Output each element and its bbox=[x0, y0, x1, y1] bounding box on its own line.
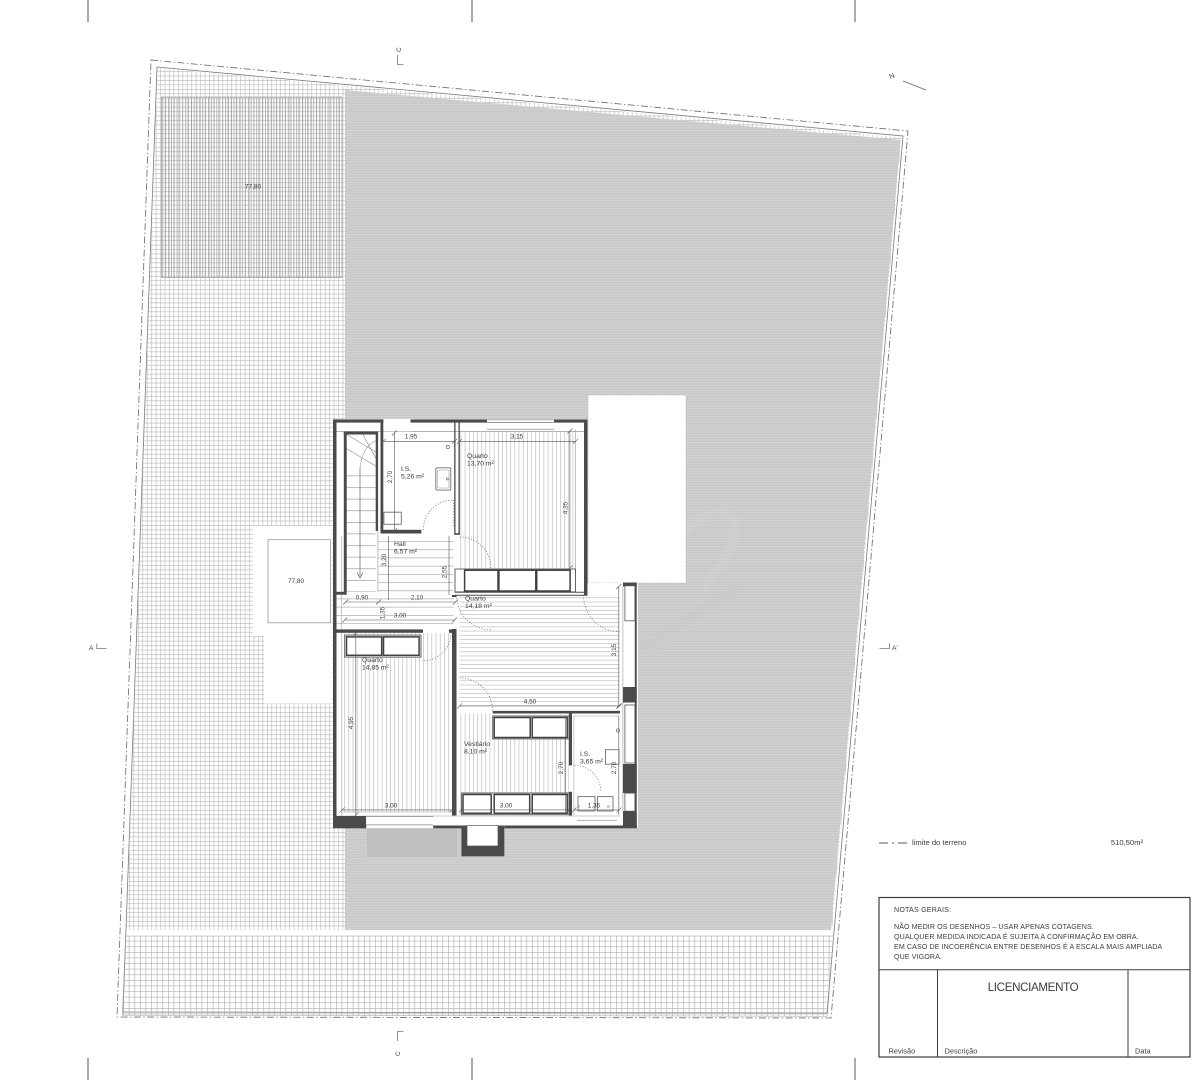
svg-text:A': A' bbox=[892, 645, 898, 652]
svg-text:Quarto: Quarto bbox=[465, 596, 486, 603]
svg-text:Quarto: Quarto bbox=[362, 657, 383, 664]
svg-text:5,26 m²: 5,26 m² bbox=[401, 473, 425, 480]
svg-text:C: C bbox=[396, 47, 403, 52]
svg-text:1,35: 1,35 bbox=[588, 802, 601, 809]
svg-text:EM CASO DE INCOERÊNCIA ENTRE D: EM CASO DE INCOERÊNCIA ENTRE DESENHOS É … bbox=[894, 942, 1163, 951]
svg-text:Quarto: Quarto bbox=[467, 453, 488, 460]
svg-text:77,80: 77,80 bbox=[245, 184, 261, 191]
svg-text:Vestiário: Vestiário bbox=[464, 741, 490, 748]
svg-text:8,10 m²: 8,10 m² bbox=[464, 748, 488, 755]
svg-text:NOTAS GERAIS:: NOTAS GERAIS: bbox=[894, 906, 951, 914]
svg-text:4,95: 4,95 bbox=[348, 716, 355, 729]
svg-text:QUALQUER MEDIDA INDICADA É SUJ: QUALQUER MEDIDA INDICADA É SUJEITA A CON… bbox=[894, 932, 1139, 941]
svg-text:0,90: 0,90 bbox=[356, 594, 369, 601]
svg-text:Hall: Hall bbox=[394, 541, 406, 548]
svg-text:I.S.: I.S. bbox=[401, 466, 411, 473]
svg-text:4,35: 4,35 bbox=[562, 501, 569, 514]
svg-text:QUE VIGORA.: QUE VIGORA. bbox=[894, 953, 942, 961]
svg-text:3,20: 3,20 bbox=[381, 553, 388, 566]
svg-text:77,80: 77,80 bbox=[288, 578, 304, 585]
svg-text:2,70: 2,70 bbox=[558, 761, 565, 774]
svg-text:6,57 m²: 6,57 m² bbox=[394, 548, 418, 555]
svg-text:3,00: 3,00 bbox=[385, 802, 398, 809]
svg-text:3,65 m²: 3,65 m² bbox=[580, 758, 604, 765]
svg-text:3,15: 3,15 bbox=[611, 643, 618, 656]
svg-text:NÃO MEDIR OS DESENHOS – USAR A: NÃO MEDIR OS DESENHOS – USAR APENAS COTA… bbox=[894, 922, 1094, 931]
svg-text:510,50m²: 510,50m² bbox=[1111, 838, 1144, 847]
svg-text:3,00: 3,00 bbox=[394, 612, 407, 619]
svg-text:1,35: 1,35 bbox=[380, 606, 387, 619]
svg-text:2,55: 2,55 bbox=[441, 565, 448, 578]
svg-text:LICENCIAMENTO: LICENCIAMENTO bbox=[988, 981, 1079, 994]
svg-text:2,70: 2,70 bbox=[387, 470, 394, 483]
svg-text:I.S.: I.S. bbox=[580, 751, 590, 758]
svg-text:C: C bbox=[395, 1051, 402, 1056]
svg-text:14,18 m²: 14,18 m² bbox=[465, 603, 493, 610]
svg-text:14,85 m²: 14,85 m² bbox=[362, 664, 390, 671]
svg-text:1,95: 1,95 bbox=[405, 434, 418, 441]
svg-text:13,70 m²: 13,70 m² bbox=[467, 460, 495, 467]
svg-text:4,50: 4,50 bbox=[524, 698, 537, 705]
svg-text:3,15: 3,15 bbox=[511, 434, 524, 441]
svg-text:2,70: 2,70 bbox=[611, 761, 618, 774]
svg-text:A: A bbox=[89, 645, 94, 652]
svg-text:Data: Data bbox=[1135, 1047, 1152, 1056]
svg-text:limite do terreno: limite do terreno bbox=[912, 838, 966, 847]
svg-text:2,10: 2,10 bbox=[411, 594, 424, 601]
svg-text:Revisão: Revisão bbox=[889, 1047, 916, 1056]
svg-text:3,00: 3,00 bbox=[500, 802, 513, 809]
svg-text:Descrição: Descrição bbox=[945, 1047, 978, 1056]
